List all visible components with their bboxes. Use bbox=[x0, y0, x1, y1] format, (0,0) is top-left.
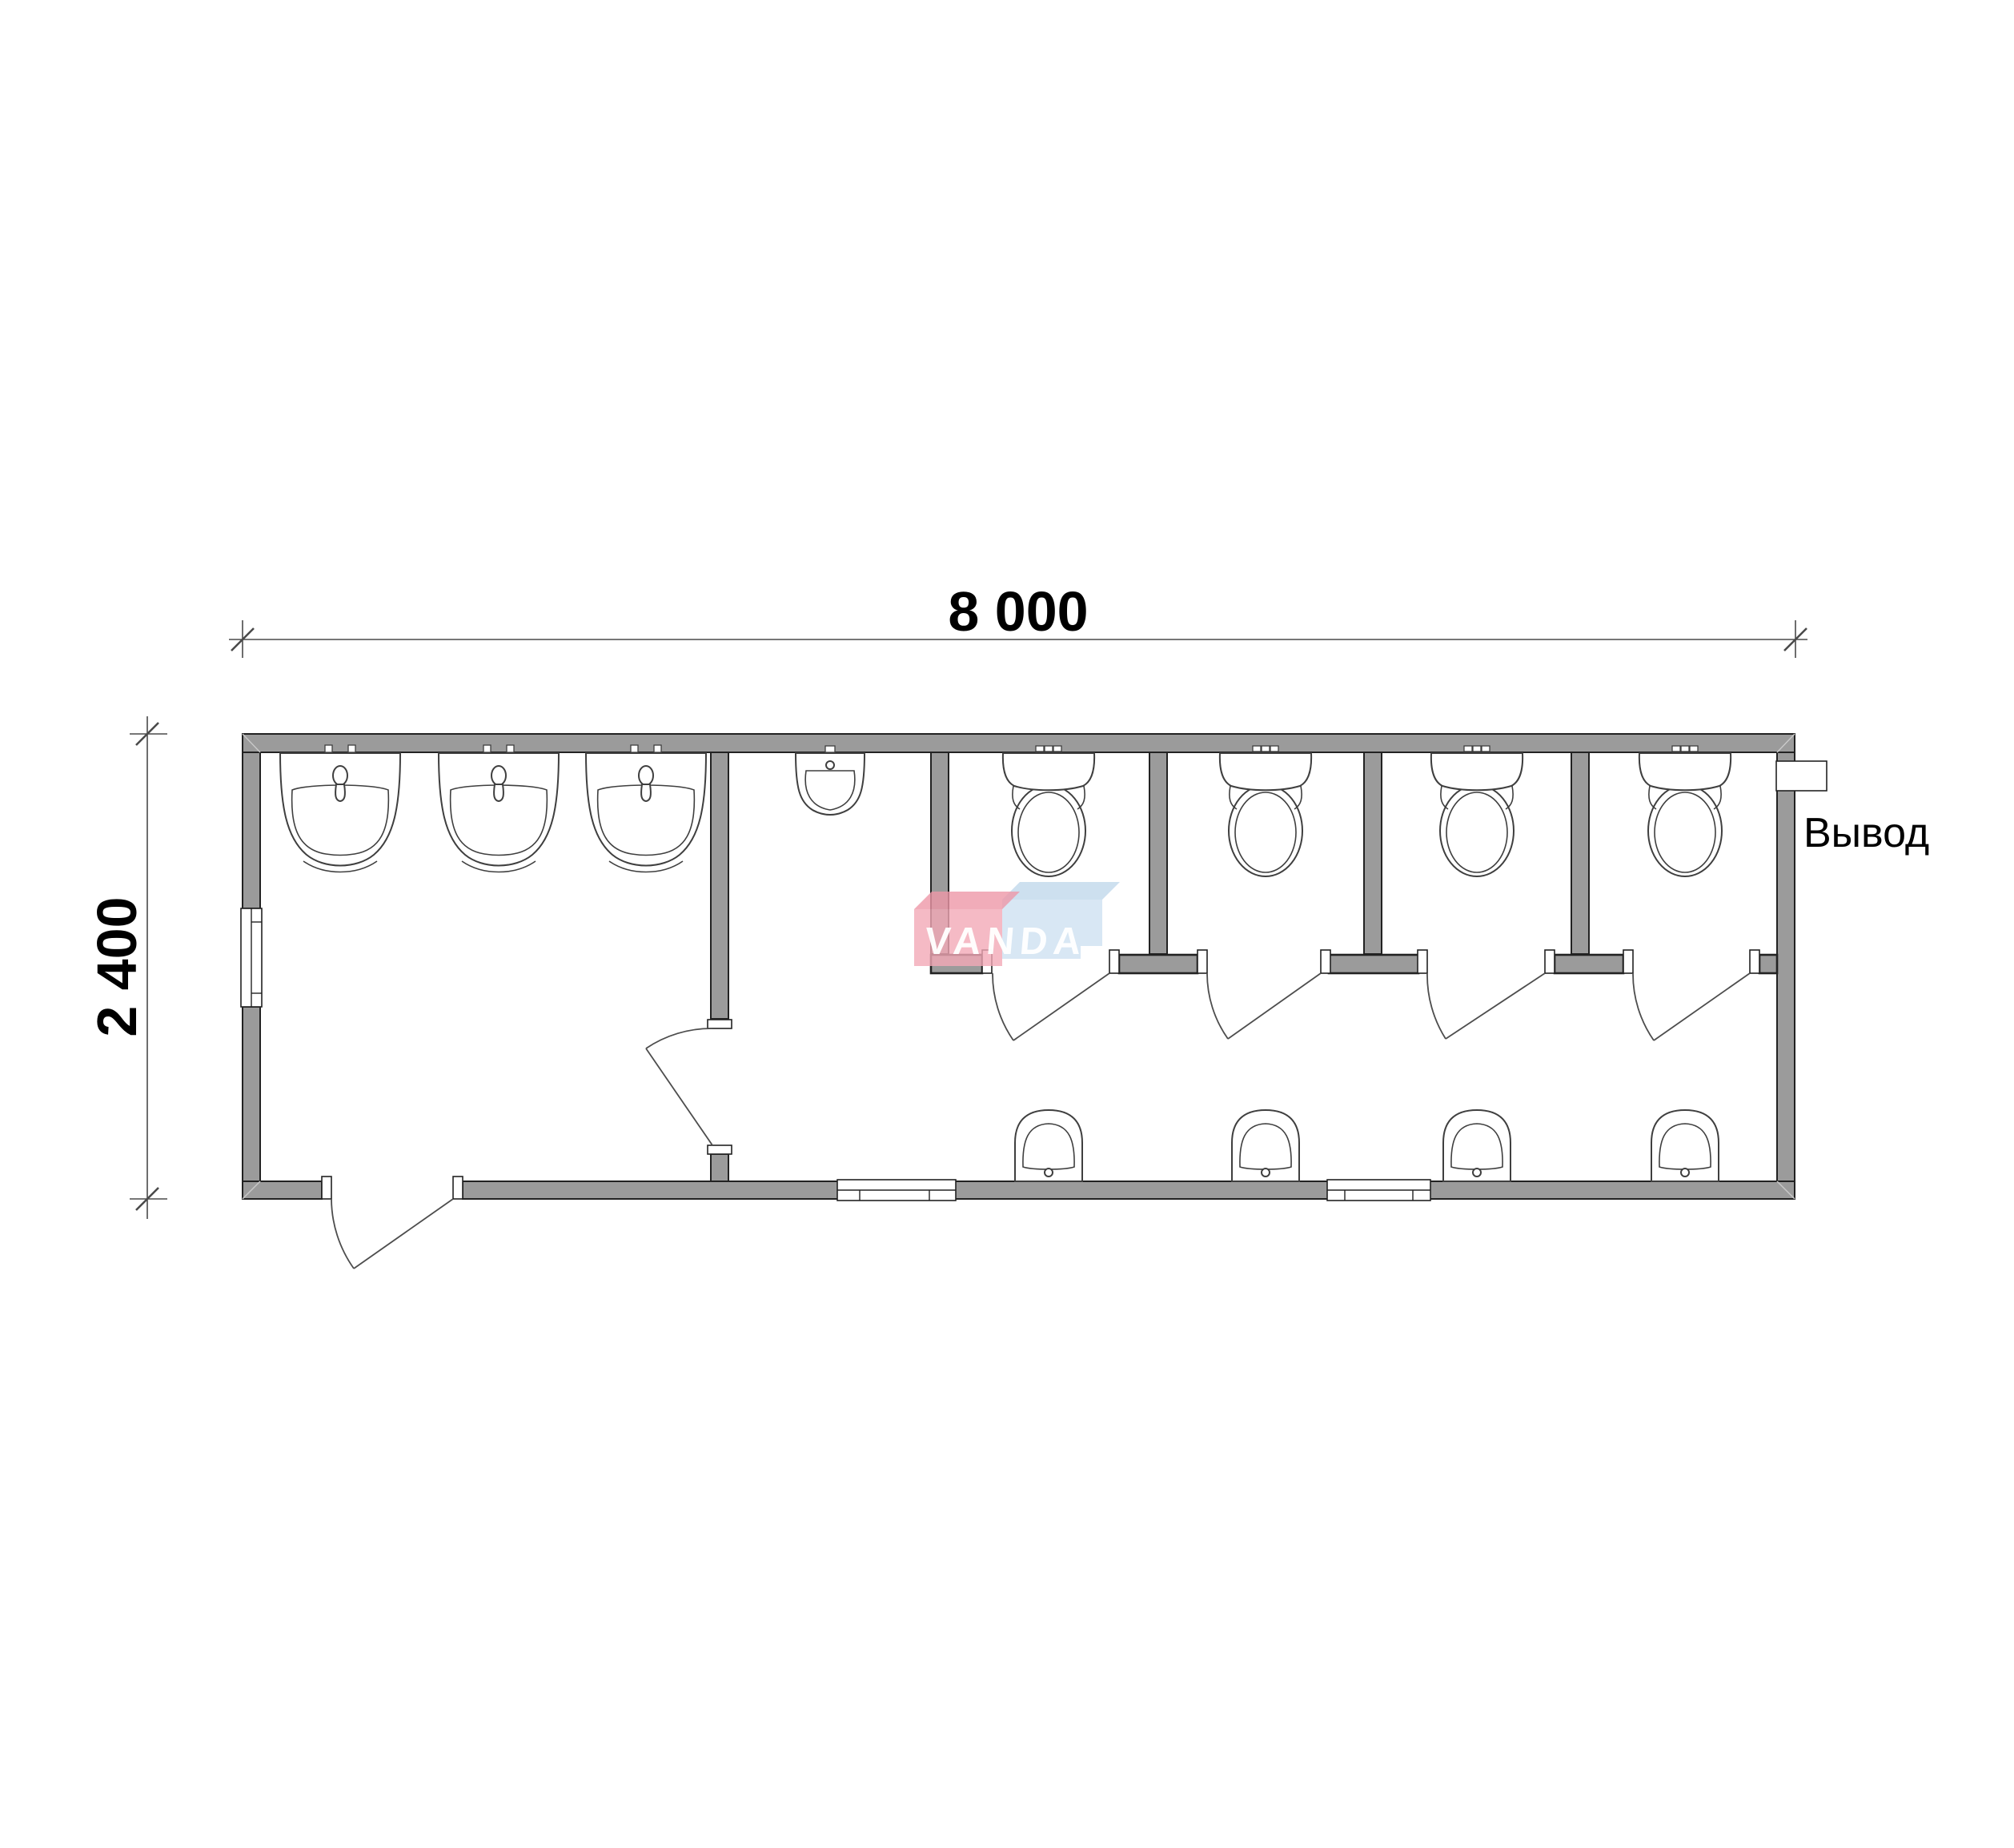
door-jamb bbox=[1623, 950, 1633, 973]
left-wall-lower bbox=[243, 1007, 260, 1181]
washroom-partition-wall bbox=[711, 752, 728, 1019]
dimension-height: 2 400 bbox=[86, 716, 167, 1219]
washroom-partition-stub bbox=[711, 1154, 728, 1181]
width-dimension-label: 8 000 bbox=[948, 580, 1088, 643]
toilet-icon bbox=[1431, 746, 1523, 876]
door-jamb bbox=[453, 1177, 463, 1199]
stall-door-swing bbox=[1207, 973, 1321, 1039]
hand-basin-icon bbox=[1232, 1110, 1299, 1181]
door-jamb bbox=[1545, 950, 1555, 973]
stall-partition-wall bbox=[1571, 752, 1589, 954]
outlet-stub-icon bbox=[1776, 761, 1827, 791]
washroom-door-swing bbox=[646, 1028, 712, 1145]
door-jamb bbox=[708, 1145, 732, 1154]
stall-door-swing bbox=[993, 973, 1109, 1040]
top-wall bbox=[243, 734, 1795, 752]
right-wall bbox=[1777, 752, 1795, 1181]
outlet-label: Вывод bbox=[1803, 810, 1929, 856]
door-jamb bbox=[322, 1177, 331, 1199]
washbasin-icon bbox=[280, 745, 400, 872]
floor-plan-drawing: 8 000 2 400 bbox=[0, 0, 2014, 1848]
washbasin-icon bbox=[439, 745, 559, 872]
fixtures bbox=[280, 745, 1731, 1181]
stall-partition-wall bbox=[1149, 752, 1167, 954]
toilet-icon bbox=[1220, 746, 1311, 876]
bottom-wall-segment bbox=[954, 1181, 1329, 1199]
bottom-wall-segment bbox=[1429, 1181, 1795, 1199]
window-icon bbox=[241, 908, 262, 1007]
height-dimension-label: 2 400 bbox=[86, 896, 148, 1036]
washbasin-icon bbox=[586, 745, 706, 872]
stall-door-swing bbox=[1633, 973, 1750, 1040]
door-jamb bbox=[1321, 950, 1330, 973]
toilet-icon bbox=[1639, 746, 1731, 876]
entrance-door-swing bbox=[331, 1199, 453, 1269]
door-jamb bbox=[1198, 950, 1207, 973]
urinal-icon bbox=[796, 746, 865, 815]
stall-front-wall bbox=[1759, 955, 1777, 973]
bottom-wall-segment bbox=[243, 1181, 322, 1199]
watermark-text: VANDA bbox=[923, 920, 1089, 963]
bottom-wall-segment bbox=[463, 1181, 839, 1199]
stall-front-wall bbox=[1555, 955, 1623, 973]
utility-outlet: Вывод bbox=[1776, 761, 1929, 856]
door-jamb bbox=[708, 1020, 732, 1028]
stall-front-wall bbox=[1329, 955, 1418, 973]
dimension-width: 8 000 bbox=[229, 580, 1807, 658]
stall-door-swing bbox=[1427, 973, 1545, 1039]
door-jamb bbox=[1109, 950, 1119, 973]
stall-partition-wall bbox=[1364, 752, 1382, 954]
left-wall-upper bbox=[243, 752, 260, 908]
stall-front-wall bbox=[1119, 955, 1198, 973]
watermark-red-box-top bbox=[914, 892, 1020, 909]
hand-basin-icon bbox=[1443, 1110, 1510, 1181]
vanda-watermark: VANDA bbox=[914, 882, 1120, 966]
door-jamb bbox=[1418, 950, 1427, 973]
watermark-blue-box-top bbox=[1002, 882, 1120, 900]
toilet-icon bbox=[1003, 746, 1094, 876]
window-icon bbox=[837, 1180, 956, 1201]
door-jamb bbox=[1750, 950, 1759, 973]
hand-basin-icon bbox=[1015, 1110, 1082, 1181]
hand-basin-icon bbox=[1651, 1110, 1719, 1181]
window-icon bbox=[1327, 1180, 1430, 1201]
